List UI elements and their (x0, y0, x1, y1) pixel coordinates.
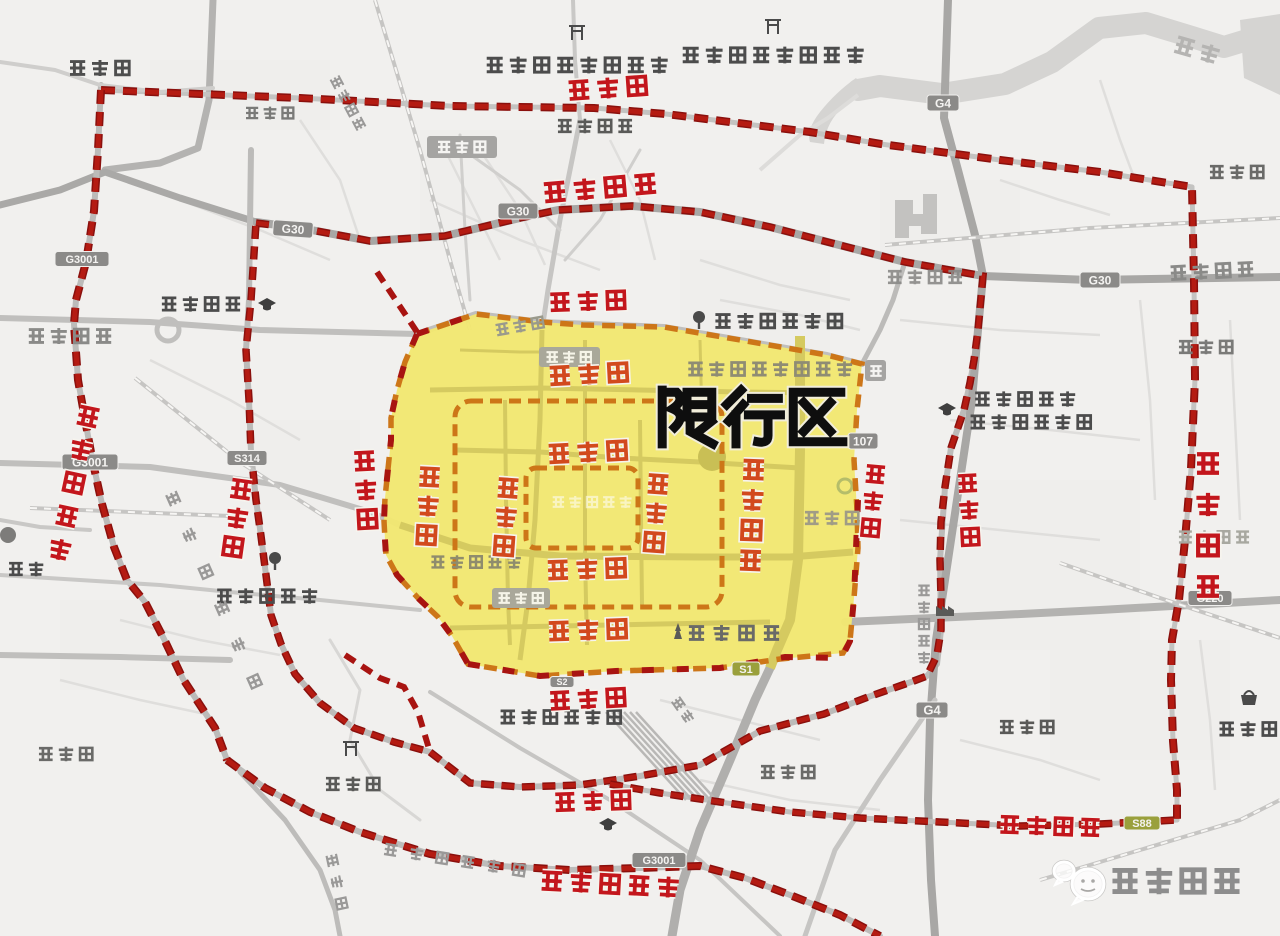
svg-text:S1: S1 (739, 664, 752, 676)
svg-text:G30: G30 (1089, 273, 1112, 287)
svg-text:S88: S88 (1132, 818, 1152, 830)
svg-text:107: 107 (853, 434, 873, 448)
svg-text:G30: G30 (281, 222, 305, 238)
svg-text:S2: S2 (556, 677, 567, 687)
svg-text:G4: G4 (923, 703, 941, 718)
svg-text:G4: G4 (935, 96, 951, 110)
svg-text:G3001: G3001 (65, 254, 98, 266)
svg-text:G30: G30 (507, 204, 530, 218)
svg-text:G3001: G3001 (642, 855, 675, 867)
svg-text:S314: S314 (234, 453, 261, 465)
